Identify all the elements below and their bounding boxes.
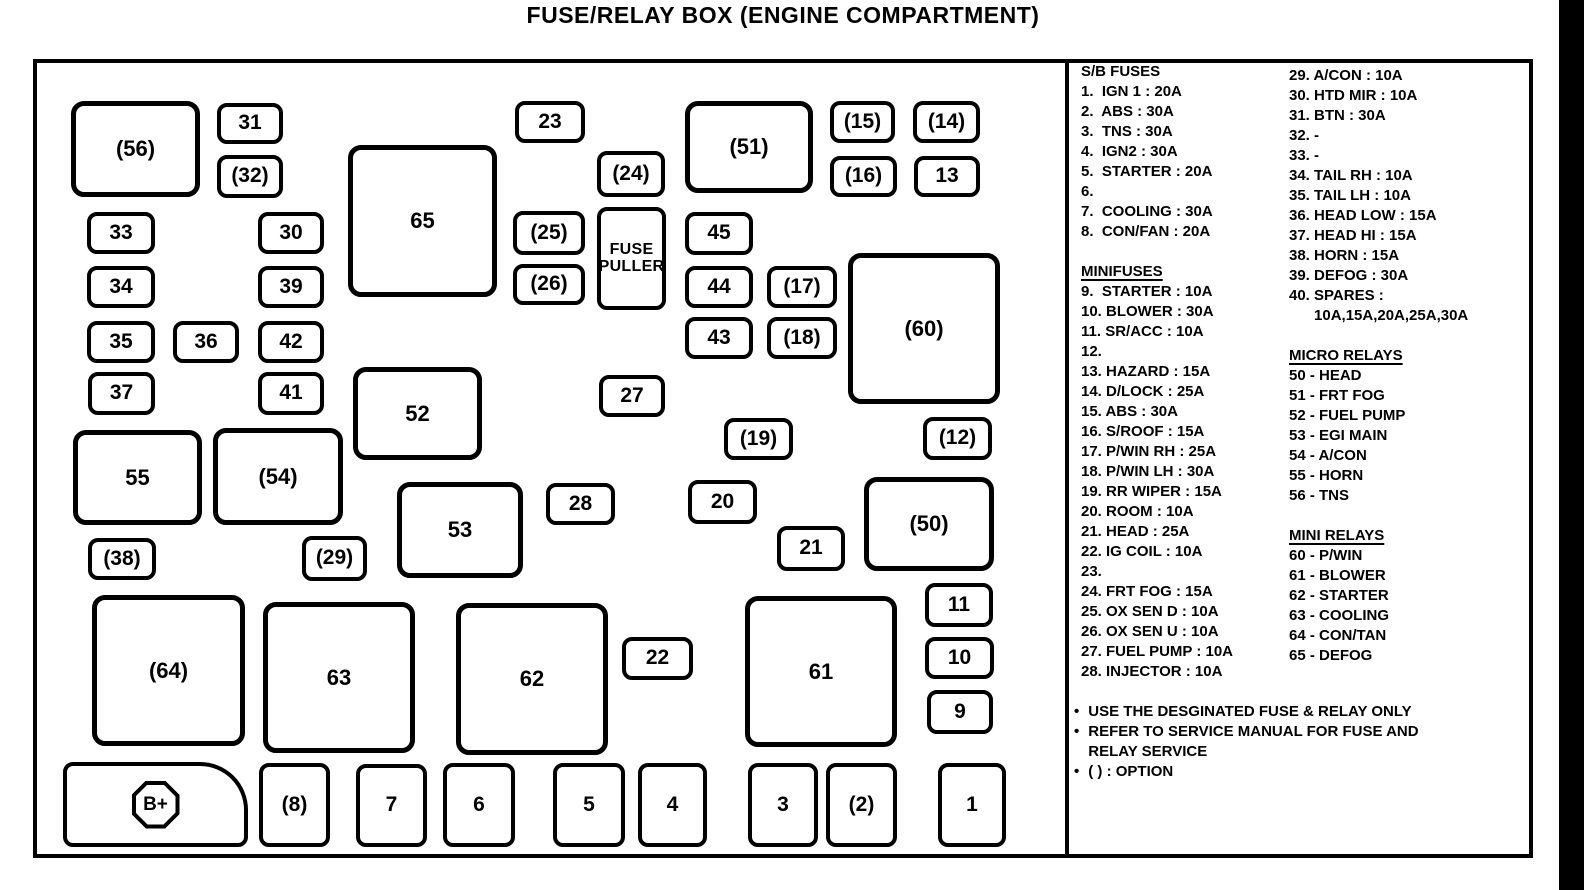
fuse-box-30: 30 [258,212,324,254]
fuse-box-label: 7 [386,794,398,816]
legend-item: 54 - A/CON [1289,446,1468,466]
footnote-text: REFER TO SERVICE MANUAL FOR FUSE ANDRELA… [1088,722,1418,762]
legend-item: 32. - [1289,126,1468,146]
legend-item: 23. [1081,562,1233,582]
fuse-box-61: 61 [745,596,897,747]
fuse-box-label: (12) [939,427,976,449]
legend-item: 18. P/WIN LH : 30A [1081,462,1233,482]
legend-item: 35. TAIL LH : 10A [1289,186,1468,206]
fuse-box-label: 10 [948,647,971,669]
legend-item: 10. BLOWER : 30A [1081,302,1233,322]
fuse-box-label: (19) [740,428,777,450]
fuse-box-19: (19) [724,418,793,460]
fuse-box-label: (32) [231,165,268,187]
fuse-box-label: 3 [777,794,789,816]
legend-item: 33. - [1289,146,1468,166]
fuse-box-label: (24) [612,163,649,185]
legend-item: 52 - FUEL PUMP [1289,406,1468,426]
fuse-box-21: 21 [777,526,845,571]
legend-item [1289,326,1468,346]
legend-item: 12. [1081,342,1233,362]
fuse-box-label: 35 [109,331,132,353]
fuse-box-label: 52 [405,402,429,425]
legend-item: 30. HTD MIR : 10A [1289,86,1468,106]
fuse-box-label: (16) [845,165,882,187]
panel-divider [1065,59,1069,858]
fuse-box-label: (51) [729,135,768,158]
legend-item: 34. TAIL RH : 10A [1289,166,1468,186]
legend-item: 25. OX SEN D : 10A [1081,602,1233,622]
fuse-box-label: 23 [538,111,561,133]
fuse-box-label: 43 [707,327,730,349]
fuse-box-label: 9 [954,701,966,723]
fuse-box-2: (2) [826,763,897,847]
fuse-box-28: 28 [546,483,615,525]
fuse-box-33: 33 [87,212,155,254]
legend-item: 61 - BLOWER [1289,566,1468,586]
fuse-box-label: (54) [258,465,297,488]
fuse-box-label: 21 [799,537,822,559]
fuse-box-label: (15) [844,111,881,133]
battery-terminal-box: B+ [63,762,248,847]
legend-item: 7. COOLING : 30A [1081,202,1233,222]
fuse-box-27: 27 [599,375,665,417]
fuse-box-8: (8) [259,763,330,847]
legend-item: 6. [1081,182,1233,202]
fuse-box-label: 61 [809,660,833,683]
legend-item: 28. INJECTOR : 10A [1081,662,1233,682]
legend-column-2: 29. A/CON : 10A30. HTD MIR : 10A31. BTN … [1289,66,1468,666]
fuse-box-29: (29) [302,536,367,581]
fuse-box-34: 34 [87,266,155,308]
legend-item: 11. SR/ACC : 10A [1081,322,1233,342]
legend-item: 4. IGN2 : 30A [1081,142,1233,162]
legend-item [1081,242,1233,262]
fuse-box-63: 63 [263,602,415,753]
legend-item: 16. S/ROOF : 15A [1081,422,1233,442]
fuse-box-label: 53 [448,518,472,541]
fuse-box-13: 13 [914,156,980,197]
fuse-box-32: (32) [217,155,283,198]
bullet-icon: • [1074,762,1079,782]
legend-item: 31. BTN : 30A [1289,106,1468,126]
fuse-box-label: (8) [282,794,308,816]
fuse-box-label: (18) [783,327,820,349]
bullet-icon: • [1074,702,1079,722]
fuse-box-label: 13 [935,165,958,187]
fuse-box-54: (54) [213,428,343,525]
battery-plus-icon: B+ [132,781,180,829]
scan-edge-artifact [1559,0,1584,890]
legend-item: 5. STARTER : 20A [1081,162,1233,182]
legend-item: 36. HEAD LOW : 15A [1289,206,1468,226]
footnote: •( ) : OPTION [1074,762,1494,782]
legend-item: 65 - DEFOG [1289,646,1468,666]
legend-section-header: S/B FUSES [1081,62,1233,82]
fuse-box-label: 22 [646,647,669,669]
legend-item: 17. P/WIN RH : 25A [1081,442,1233,462]
fuse-box-label: (38) [103,548,140,570]
legend-item: 29. A/CON : 10A [1289,66,1468,86]
legend-item: 40. SPARES : [1289,286,1468,306]
legend-column-1: S/B FUSES1. IGN 1 : 20A2. ABS : 30A3. TN… [1081,62,1233,682]
legend-item: 38. HORN : 15A [1289,246,1468,266]
legend-item: 26. OX SEN U : 10A [1081,622,1233,642]
legend-item: 64 - CON/TAN [1289,626,1468,646]
fuse-box-23: 23 [515,101,585,143]
fuse-box-51: (51) [685,101,813,193]
legend-section-header: MICRO RELAYS [1289,346,1468,366]
fuse-box-65: 65 [348,145,497,297]
fuse-box-36: 36 [173,321,239,363]
fuse-box-label: (14) [928,111,965,133]
fuse-box-label: 41 [279,382,302,404]
legend-section-header: MINIFUSES [1081,262,1233,282]
fuse-box-label: 28 [569,493,592,515]
legend-item: 2. ABS : 30A [1081,102,1233,122]
fuse-box-label: 5 [583,794,595,816]
fuse-box-55: 55 [73,430,202,525]
fuse-box-label: (50) [909,512,948,535]
legend-item: 1. IGN 1 : 20A [1081,82,1233,102]
fuse-box-1: 1 [938,763,1006,847]
legend-item: 56 - TNS [1289,486,1468,506]
legend-item: 19. RR WIPER : 15A [1081,482,1233,502]
fuse-box-22: 22 [622,637,693,680]
fuse-box-31: 31 [217,103,283,144]
legend-item: 24. FRT FOG : 15A [1081,582,1233,602]
fuse-box-9: 9 [927,690,993,734]
fuse-box-label: 4 [667,794,679,816]
fuse-box-label: 39 [279,276,302,298]
fuse-box-5: 5 [553,763,625,847]
fuse-box-label: 44 [707,276,730,298]
bullet-icon: • [1074,722,1079,762]
legend-item: 37. HEAD HI : 15A [1289,226,1468,246]
fuse-box-26: (26) [513,264,585,305]
fuse-box-37: 37 [88,372,155,415]
fuse-box-label: 20 [711,491,734,513]
footnote: •USE THE DESGINATED FUSE & RELAY ONLY [1074,702,1494,722]
fuse-box-16: (16) [830,156,897,197]
fuse-box-label: FUSEPULLER [599,242,665,276]
fuse-box-41: 41 [258,372,324,415]
fuse-box-label: 6 [473,794,485,816]
legend-section-header: MINI RELAYS [1289,526,1468,546]
legend-item: 9. STARTER : 10A [1081,282,1233,302]
fuse-box-44: 44 [685,266,753,308]
diagram-title: FUSE/RELAY BOX (ENGINE COMPARTMENT) [33,2,1533,29]
fuse-box-25: (25) [513,211,585,255]
fuse-box-43: 43 [685,317,753,359]
legend-item: 22. IG COIL : 10A [1081,542,1233,562]
fuse-box-15: (15) [830,101,895,143]
fuse-box-label: (25) [530,222,567,244]
fuse-box-62: 62 [456,603,608,755]
fuse-box-label: (60) [904,317,943,340]
legend-item: 20. ROOM : 10A [1081,502,1233,522]
fuse-box-4: 4 [638,763,707,847]
fuse-box-label: 62 [520,667,544,690]
fuse-box-label: 27 [620,385,643,407]
legend-item: 62 - STARTER [1289,586,1468,606]
fuse-box-14: (14) [913,101,980,143]
legend-item: 50 - HEAD [1289,366,1468,386]
fuse-box-label: 42 [279,331,302,353]
footnote: •REFER TO SERVICE MANUAL FOR FUSE ANDREL… [1074,722,1494,762]
fuse-box-17: (17) [767,266,837,308]
fuse-box-60: (60) [848,253,1000,404]
fuse-box-24: (24) [597,151,665,197]
fuse-box-53: 53 [397,482,523,578]
fuse-box-label: 36 [194,331,217,353]
legend-item: 15. ABS : 30A [1081,402,1233,422]
fuse-box-label: (17) [783,276,820,298]
fuse-box-label: 65 [410,209,434,232]
legend-item: 8. CON/FAN : 20A [1081,222,1233,242]
footnote-text: ( ) : OPTION [1088,762,1173,782]
fuse-box-12: (12) [923,417,992,460]
legend-item: 39. DEFOG : 30A [1289,266,1468,286]
fuse-box-45: 45 [685,212,753,255]
fuse-box-20: 20 [688,480,757,524]
fuse-box-7: 7 [356,764,427,847]
fuse-box-label: 33 [109,222,132,244]
fuse-box-label: (2) [849,794,875,816]
legend-item: 53 - EGI MAIN [1289,426,1468,446]
fuse-box-label: 37 [110,382,133,404]
fuse-box-39: 39 [258,266,324,308]
legend-item: 21. HEAD : 25A [1081,522,1233,542]
fuse-box-label: (26) [530,273,567,295]
footnote-text: USE THE DESGINATED FUSE & RELAY ONLY [1088,702,1411,722]
fuse-box-label: (64) [149,659,188,682]
fuse-box-18: (18) [767,317,837,359]
fuse-box-label: 31 [238,112,261,134]
fuse-box-10: 10 [925,637,994,679]
legend-item: 3. TNS : 30A [1081,122,1233,142]
fuse-box-label: 45 [707,222,730,244]
legend-item: 14. D/LOCK : 25A [1081,382,1233,402]
fuse-box-42: 42 [258,321,324,363]
legend-item: 51 - FRT FOG [1289,386,1468,406]
fuse-box-label: 63 [327,666,351,689]
fuse-puller-box: FUSEPULLER [597,207,666,310]
fuse-box-3: 3 [748,763,818,847]
footnotes: •USE THE DESGINATED FUSE & RELAY ONLY•RE… [1074,702,1494,782]
legend-item: 60 - P/WIN [1289,546,1468,566]
fuse-box-label: (56) [116,137,155,160]
fuse-box-35: 35 [87,321,155,363]
fuse-box-52: 52 [353,367,482,460]
legend-item: 27. FUEL PUMP : 10A [1081,642,1233,662]
fuse-box-label: 1 [966,794,978,816]
legend-item: 55 - HORN [1289,466,1468,486]
fuse-box-label: 34 [109,276,132,298]
fuse-box-64: (64) [92,595,245,746]
fuse-box-label: 30 [279,222,302,244]
legend-item: 63 - COOLING [1289,606,1468,626]
fuse-box-label: 55 [125,466,149,489]
fuse-box-50: (50) [864,477,994,571]
legend-item: 10A,15A,20A,25A,30A [1289,306,1468,326]
legend-item: 13. HAZARD : 15A [1081,362,1233,382]
fuse-box-38: (38) [88,538,156,580]
fuse-box-label: (29) [316,547,353,569]
fuse-box-11: 11 [925,583,993,627]
fuse-box-6: 6 [443,763,515,847]
fuse-box-56: (56) [71,101,200,197]
legend-item [1289,506,1468,526]
fuse-box-label: 11 [948,594,970,616]
